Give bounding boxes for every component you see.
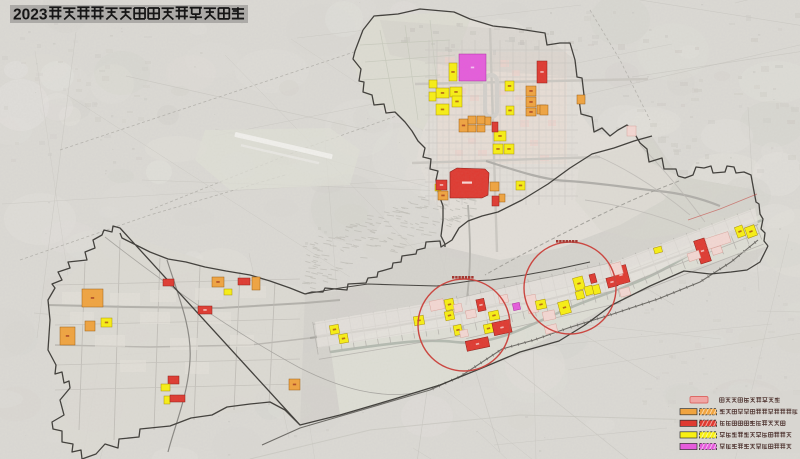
svg-text:2023: 2023 <box>13 7 48 24</box>
